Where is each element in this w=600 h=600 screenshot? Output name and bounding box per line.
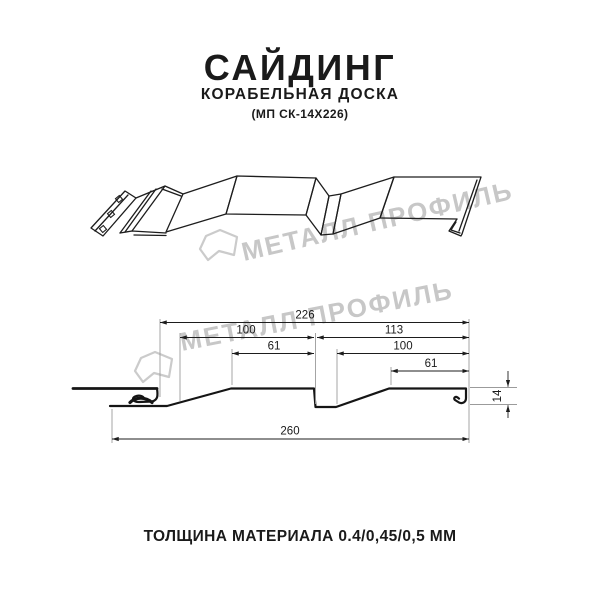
- dimension-100-right: 100: [337, 341, 469, 354]
- dimension-label: 226: [295, 310, 314, 322]
- material-thickness-note: ТОЛЩИНА МАТЕРИАЛА 0.4/0,45/0,5 ММ: [0, 528, 600, 546]
- dimension-14: 14: [492, 371, 508, 418]
- dimension-113: 113: [317, 325, 469, 338]
- brand-logo-icon: [135, 352, 172, 382]
- dimension-226: 226: [160, 310, 469, 323]
- dimension-label: 14: [492, 389, 504, 402]
- dimension-260: 260: [112, 426, 469, 440]
- profile-cross-section: [73, 389, 466, 408]
- dimension-label: 61: [425, 358, 438, 370]
- brand-logo-icon: [200, 230, 237, 260]
- dimension-label: 113: [385, 325, 403, 337]
- flat-face-1: [226, 176, 316, 215]
- slope-face-1: [166, 176, 237, 232]
- dimension-label: 260: [280, 426, 299, 438]
- dimension-label: 100: [236, 325, 255, 337]
- technical-drawing-canvas: МЕТАЛЛ ПРОФИЛЬ: [0, 0, 600, 600]
- dimension-61-right: 61: [391, 358, 469, 371]
- brand-watermark-lower: МЕТАЛЛ ПРОФИЛЬ: [135, 274, 456, 382]
- dimension-label: 100: [393, 341, 412, 353]
- product-diagram-page: САЙДИНГ КОРАБЕЛЬНАЯ ДОСКА (МП СК-14Х226)…: [0, 0, 600, 600]
- panel-outline: [110, 389, 466, 408]
- brand-watermark-text: МЕТАЛЛ ПРОФИЛЬ: [177, 274, 455, 356]
- dimension-label: 61: [268, 341, 281, 353]
